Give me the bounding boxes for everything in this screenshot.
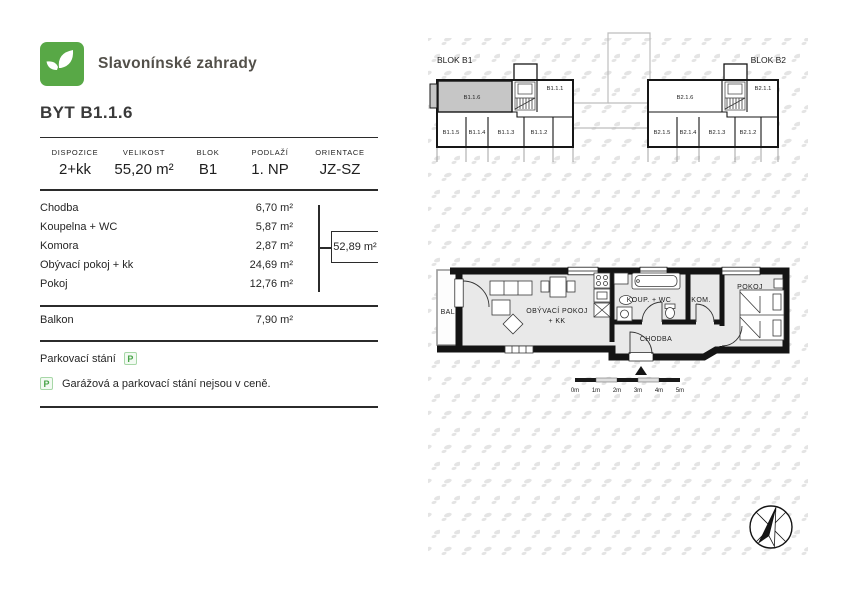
parking-icon: P [124, 352, 137, 365]
room-row: Pokoj 12,76 m² [40, 278, 293, 297]
summary-label: ORIENTACE [302, 148, 378, 157]
room-row: Koupelna + WC 5,87 m² [40, 221, 293, 240]
brand-name: Slavonínské zahrady [98, 55, 257, 73]
summary-value: JZ-SZ [302, 161, 378, 178]
scale-tick: 3m [634, 388, 642, 394]
scale-tick: 1m [592, 388, 600, 394]
room-name: Komora [40, 240, 79, 252]
room-list: Chodba 6,70 m² Koupelna + WC 5,87 m² Kom… [40, 202, 293, 297]
parking-note: Garážová a parkovací stání nejsou v ceně… [62, 378, 271, 390]
summary-value: 1. NP [238, 161, 302, 178]
divider [40, 406, 378, 408]
room-row: Komora 2,87 m² [40, 240, 293, 259]
storage-label: KOM. [691, 297, 711, 304]
unit-label: B1.1.2 [531, 130, 548, 136]
room-name: Obývací pokoj + kk [40, 259, 133, 271]
balcony-area: 7,90 m² [256, 314, 293, 326]
block-b1-label: BLOK B1 [437, 55, 473, 65]
divider [40, 189, 378, 191]
shelf-icon [614, 273, 628, 284]
summary-label: PODLAŽÍ [238, 148, 302, 157]
total-bracket-line [318, 205, 320, 292]
room-area: 12,76 m² [250, 278, 293, 290]
bedroom-label: POKOJ [737, 284, 763, 291]
graphics-panel: BLOK B1 B1.1.6 B1.1.1 B1.1.5 B1.1.4 B1.1… [420, 0, 842, 595]
room-area: 6,70 m² [256, 202, 293, 214]
summary-col-blok: BLOK B1 [178, 148, 238, 178]
parking-note-row: P Garážová a parkovací stání nejsou v ce… [40, 377, 271, 390]
summary-col-podlazi: PODLAŽÍ 1. NP [238, 148, 302, 178]
living-room-label-2: + KK [549, 318, 566, 325]
unit-label: B1.1.4 [469, 130, 487, 136]
living-room-label: OBÝVACÍ POKOJ [526, 306, 587, 315]
unit-label: B1.1.6 [464, 95, 481, 101]
summary-label: BLOK [178, 148, 238, 157]
unit-label: B2.1.2 [740, 130, 757, 136]
room-row: Obývací pokoj + kk 24,69 m² [40, 259, 293, 278]
washing-machine-icon [617, 307, 632, 321]
summary-value: 55,20 m² [110, 161, 178, 178]
scale-tick: 0m [571, 388, 579, 394]
summary-col-velikost: VELIKOST 55,20 m² [110, 148, 178, 178]
compass-icon [750, 506, 792, 548]
unit-label: B2.1.5 [654, 130, 671, 136]
room-name: Pokoj [40, 278, 68, 290]
floorplan-svg: BLOK B1 B1.1.6 B1.1.1 B1.1.5 B1.1.4 B1.1… [420, 0, 842, 595]
scale-tick: 5m [676, 388, 684, 394]
unit-label: B2.1.6 [677, 95, 694, 101]
unit-label: B1.1.1 [547, 86, 564, 92]
summary-label: VELIKOST [110, 148, 178, 157]
sofa-icon [490, 281, 532, 295]
room-area: 5,87 m² [256, 221, 293, 233]
unit-label: B2.1.1 [755, 86, 772, 92]
summary-label: DISPOZICE [40, 148, 110, 157]
unit-label: B2.1.4 [680, 130, 698, 136]
parking-row: Parkovací stání P [40, 352, 137, 365]
total-area-value: 52,89 m² [333, 241, 376, 253]
room-name: Koupelna + WC [40, 221, 117, 233]
scale-tick: 2m [613, 388, 621, 394]
room-area: 24,69 m² [250, 259, 293, 271]
unit-label: B2.1.3 [709, 130, 726, 136]
bathtub-icon [632, 273, 680, 289]
summary-value: 2+kk [40, 161, 110, 178]
hallway-label: CHODBA [640, 336, 672, 343]
toilet-icon [665, 304, 675, 319]
stairs-icon [725, 82, 745, 110]
logo-icon [40, 42, 84, 86]
parking-label: Parkovací stání [40, 353, 116, 365]
stairs-icon [515, 82, 535, 110]
radiator-icon [505, 346, 533, 353]
divider [40, 305, 378, 307]
brand-header: Slavonínské zahrady [40, 42, 257, 86]
parking-icon: P [40, 377, 53, 390]
summary-value: B1 [178, 161, 238, 178]
divider [40, 137, 378, 138]
block-b2-label: BLOK B2 [751, 55, 787, 65]
total-area-box: 52,89 m² [331, 231, 378, 263]
scale-tick: 4m [655, 388, 663, 394]
coffee-table-icon [492, 300, 510, 315]
summary-table: DISPOZICE 2+kk VELIKOST 55,20 m² BLOK B1… [40, 148, 378, 178]
unit-label: B1.1.3 [498, 130, 515, 136]
info-panel: Slavonínské zahrady BYT B1.1.6 DISPOZICE… [40, 0, 378, 595]
room-area: 2,87 m² [256, 240, 293, 252]
balcony-name: Balkon [40, 314, 74, 326]
apartment-title: BYT B1.1.6 [40, 103, 133, 123]
room-name: Chodba [40, 202, 79, 214]
room-row: Chodba 6,70 m² [40, 202, 293, 221]
summary-col-dispozice: DISPOZICE 2+kk [40, 148, 110, 178]
kitchen-icon [594, 273, 610, 317]
divider [40, 340, 378, 342]
summary-col-orientace: ORIENTACE JZ-SZ [302, 148, 378, 178]
balcony-row: Balkon 7,90 m² [40, 314, 293, 326]
unit-label: B1.1.5 [443, 130, 460, 136]
bathroom-label: KOUP. + WC [627, 297, 672, 304]
